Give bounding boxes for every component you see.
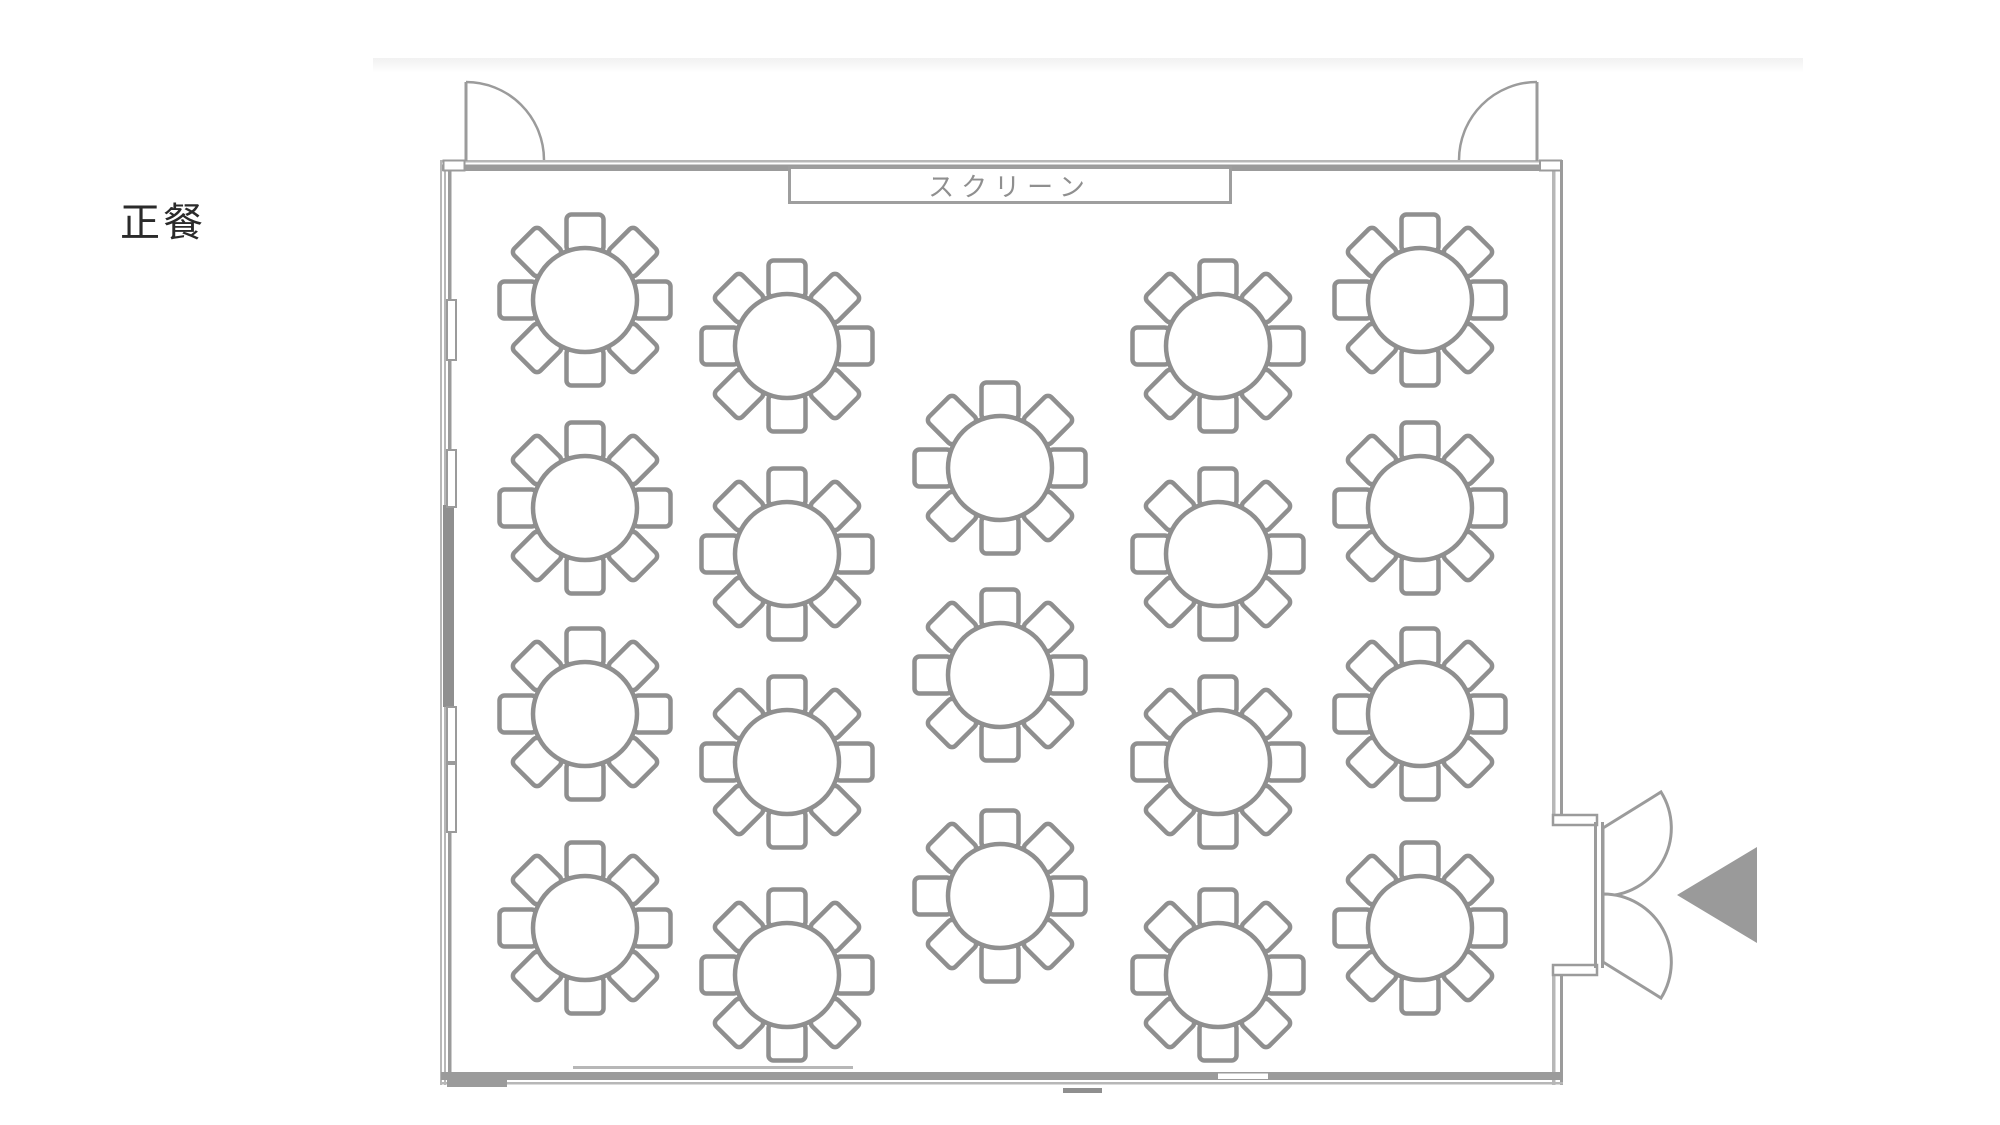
wall-left bbox=[440, 160, 442, 1085]
banquet-table bbox=[1335, 843, 1506, 1014]
table-top bbox=[735, 294, 839, 398]
banquet-table bbox=[1133, 261, 1304, 432]
double-door-leaf-upper bbox=[1603, 792, 1671, 896]
floorplan-page: 正餐 スクリーン bbox=[0, 0, 2000, 1125]
banquet-table bbox=[915, 811, 1086, 982]
wall-left-thick-segment bbox=[443, 505, 454, 707]
wall-left-panel bbox=[447, 764, 456, 832]
screen-area-label: スクリーン bbox=[928, 167, 1092, 204]
double-door-frame bbox=[1594, 822, 1597, 968]
banquet-table bbox=[1335, 629, 1506, 800]
wall-right bbox=[1560, 966, 1563, 1085]
banquet-table bbox=[500, 423, 671, 594]
wall-bottom-corner-piece bbox=[447, 1079, 507, 1087]
banquet-table bbox=[702, 469, 873, 640]
double-door-leaf-lower bbox=[1603, 894, 1671, 998]
wall-left-panel bbox=[447, 300, 456, 360]
banquet-table bbox=[500, 215, 671, 386]
entrance-arrow-icon bbox=[1677, 847, 1757, 943]
table-top bbox=[948, 416, 1052, 520]
door-top-right-swing-arc bbox=[1459, 82, 1537, 160]
table-top bbox=[735, 923, 839, 1027]
banquet-table bbox=[1133, 677, 1304, 848]
banquet-table bbox=[1335, 423, 1506, 594]
wall-right bbox=[1552, 966, 1556, 1085]
double-door-jamb-top bbox=[1553, 815, 1597, 825]
banquet-table bbox=[915, 590, 1086, 761]
banquet-table bbox=[1133, 890, 1304, 1061]
table-top bbox=[735, 710, 839, 814]
wall-right bbox=[1552, 166, 1556, 822]
wall-right bbox=[1560, 160, 1563, 822]
corner-notch-top-left bbox=[444, 161, 465, 171]
banquet-table bbox=[702, 261, 873, 432]
table-top bbox=[948, 623, 1052, 727]
banquet-table bbox=[500, 843, 671, 1014]
table-top bbox=[735, 502, 839, 606]
banquet-table bbox=[1335, 215, 1506, 386]
wall-bottom bbox=[441, 1072, 1563, 1080]
table-top bbox=[1166, 923, 1270, 1027]
banquet-table bbox=[500, 629, 671, 800]
wall-left-panel bbox=[447, 450, 456, 507]
table-top bbox=[533, 456, 637, 560]
wall-top bbox=[441, 160, 1563, 163]
wall-bottom-inner-segment bbox=[573, 1066, 853, 1069]
double-door-jamb-bottom bbox=[1553, 965, 1597, 975]
table-top bbox=[1368, 662, 1472, 766]
table-top bbox=[1166, 294, 1270, 398]
door-top-left-swing-arc bbox=[466, 82, 544, 160]
table-top bbox=[1166, 710, 1270, 814]
table-top bbox=[533, 876, 637, 980]
wall-bottom-tick bbox=[1063, 1088, 1102, 1093]
corner-notch-top-right bbox=[1540, 161, 1561, 171]
wall-bottom bbox=[441, 1082, 1563, 1085]
banquet-table bbox=[1133, 469, 1304, 640]
table-top bbox=[1368, 248, 1472, 352]
wall-bottom-notch bbox=[1218, 1074, 1268, 1080]
screen-area-box: スクリーン bbox=[788, 166, 1232, 204]
table-top bbox=[533, 662, 637, 766]
room-type-label: 正餐 bbox=[120, 190, 206, 248]
table-top bbox=[1368, 456, 1472, 560]
wall-left-panel bbox=[447, 707, 456, 762]
banquet-table bbox=[702, 677, 873, 848]
banquet-table bbox=[915, 383, 1086, 554]
table-top bbox=[1368, 876, 1472, 980]
table-top bbox=[533, 248, 637, 352]
table-top bbox=[1166, 502, 1270, 606]
table-top bbox=[948, 844, 1052, 948]
banquet-table bbox=[702, 890, 873, 1061]
